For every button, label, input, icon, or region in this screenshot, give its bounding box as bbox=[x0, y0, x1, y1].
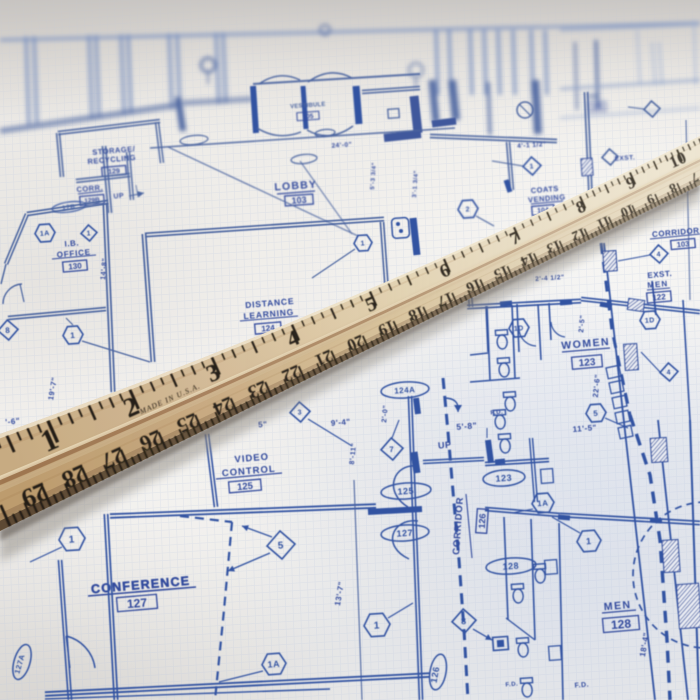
svg-text:1A: 1A bbox=[537, 499, 549, 509]
svg-text:1: 1 bbox=[70, 331, 76, 340]
svg-text:125: 125 bbox=[237, 481, 254, 493]
svg-text:F.D.: F.D. bbox=[574, 681, 589, 689]
svg-text:9'-4": 9'-4" bbox=[331, 417, 351, 428]
svg-text:128: 128 bbox=[502, 561, 519, 572]
svg-text:103: 103 bbox=[676, 239, 689, 249]
svg-text:103: 103 bbox=[291, 195, 307, 206]
svg-text:4: 4 bbox=[666, 369, 671, 376]
svg-text:2: 2 bbox=[465, 206, 470, 213]
svg-text:123: 123 bbox=[495, 473, 512, 484]
svg-text:130: 130 bbox=[68, 261, 83, 271]
svg-text:127: 127 bbox=[396, 528, 413, 539]
svg-text:123: 123 bbox=[578, 357, 596, 369]
svg-text:F.D.: F.D. bbox=[490, 409, 503, 416]
svg-text:1A: 1A bbox=[267, 659, 280, 670]
svg-text:5: 5 bbox=[277, 540, 284, 551]
svg-text:1A: 1A bbox=[40, 230, 50, 238]
svg-text:5'-8": 5'-8" bbox=[456, 420, 478, 432]
svg-text:1D: 1D bbox=[645, 317, 655, 325]
svg-text:RM: RM bbox=[588, 94, 600, 101]
svg-text:EXST.: EXST. bbox=[614, 154, 635, 162]
svg-text:UP: UP bbox=[438, 439, 452, 450]
svg-text:127: 127 bbox=[126, 595, 147, 611]
svg-text:1: 1 bbox=[373, 620, 380, 631]
svg-text:1: 1 bbox=[360, 240, 365, 247]
svg-text:105: 105 bbox=[591, 104, 603, 112]
svg-text:122: 122 bbox=[652, 292, 667, 302]
svg-text:105: 105 bbox=[302, 113, 314, 121]
svg-text:5: 5 bbox=[593, 409, 599, 418]
svg-text:8: 8 bbox=[5, 326, 11, 335]
svg-text:1: 1 bbox=[86, 230, 91, 237]
svg-text:1: 1 bbox=[529, 163, 534, 170]
svg-text:1: 1 bbox=[586, 536, 592, 546]
svg-text:F.D.: F.D. bbox=[505, 681, 518, 688]
svg-text:8: 8 bbox=[461, 616, 467, 626]
svg-text:124A: 124A bbox=[394, 385, 416, 395]
svg-text:24'-0": 24'-0" bbox=[331, 141, 352, 149]
svg-text:128: 128 bbox=[610, 616, 631, 632]
svg-text:1D: 1D bbox=[514, 325, 524, 333]
svg-text:1: 1 bbox=[68, 534, 75, 545]
svg-text:7: 7 bbox=[389, 445, 395, 454]
svg-text:UP: UP bbox=[113, 193, 124, 201]
svg-text:'-6": '-6" bbox=[5, 416, 21, 426]
svg-text:3: 3 bbox=[297, 409, 302, 416]
svg-text:4: 4 bbox=[656, 251, 661, 258]
svg-text:126: 126 bbox=[477, 513, 488, 529]
svg-text:I.B.: I.B. bbox=[64, 238, 79, 248]
